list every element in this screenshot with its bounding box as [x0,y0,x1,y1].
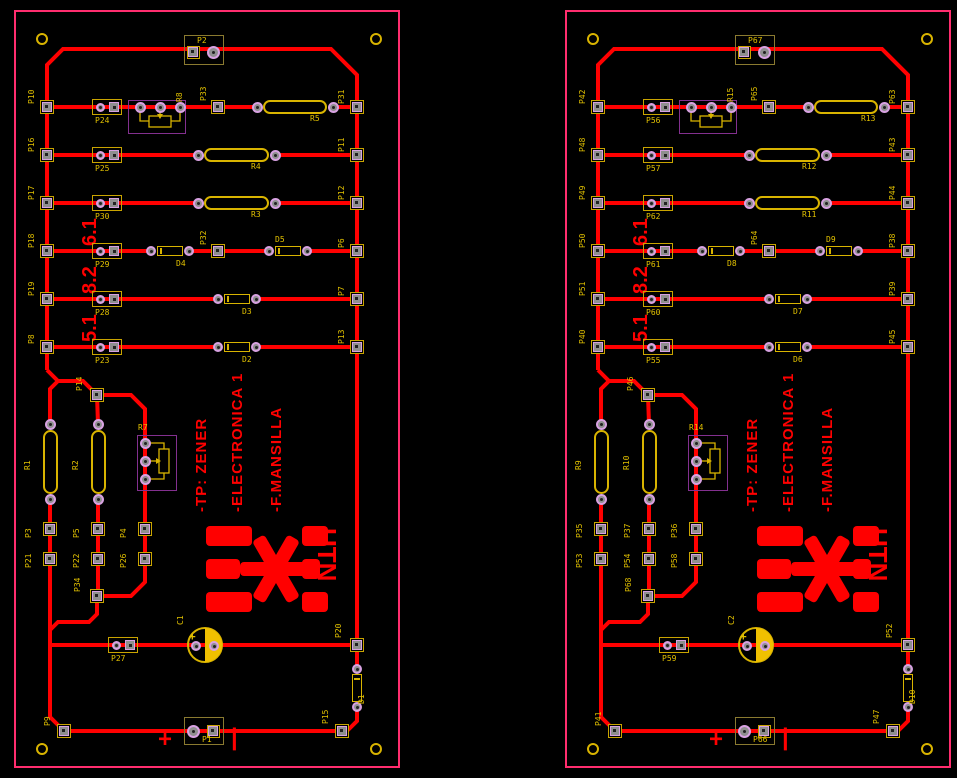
ref-label: P5 [73,528,81,538]
resistor-pad[interactable] [744,150,755,161]
silkscreen-line-2: -ELECTRONICA 1 [781,373,796,512]
ref-label: R13 [861,115,875,123]
polarity-minus: | [231,726,238,750]
pad-P40[interactable] [591,340,605,354]
diode-band [778,344,780,350]
ref-label: R11 [802,211,816,219]
polarity-plus: + [709,728,723,752]
diode-pad[interactable] [251,342,261,352]
resistor-pad[interactable] [252,102,263,113]
resistor-R13[interactable] [814,100,878,114]
ref-label: P56 [646,117,660,125]
header-pad[interactable] [660,294,670,304]
pad-P34[interactable] [90,589,104,603]
connector-pad-1[interactable] [187,46,200,59]
header-pad[interactable] [676,640,686,650]
diode-band [227,344,229,350]
pad-P51[interactable] [591,292,605,306]
ref-label: P6 [338,238,346,248]
pad-P13[interactable] [350,340,364,354]
zener-value: 5.1 [80,314,100,342]
header-pad[interactable] [109,102,119,112]
ref-label: P33 [200,87,208,101]
pad-P26[interactable] [138,552,152,566]
ref-label: R8 [176,92,184,102]
connector-label: P2 [197,37,207,45]
resistor-pad[interactable] [193,198,204,209]
trimmer-pad[interactable] [691,474,702,485]
ref-label: P35 [576,524,584,538]
ref-label: R12 [802,163,816,171]
pad-P3[interactable] [43,522,57,536]
ref-label: P32 [200,231,208,245]
ref-label: P22 [73,554,81,568]
connector-label: P1 [202,736,212,744]
ref-label: P59 [662,655,676,663]
resistor-R9[interactable] [594,430,609,494]
trimmer-pad[interactable] [140,456,151,467]
header-pad[interactable] [96,151,105,160]
ref-label: P44 [889,186,897,200]
resistor-pad[interactable] [45,494,56,505]
mounting-hole [921,743,933,755]
diode-pad[interactable] [764,294,774,304]
ref-label: P12 [338,186,346,200]
svg-text:UTN: UTN [863,528,891,581]
ref-label: D2 [242,356,252,364]
capacitor-pad[interactable] [760,641,770,651]
pad-P12[interactable] [350,196,364,210]
ref-label: P21 [25,554,33,568]
header-pad[interactable] [96,247,105,256]
ref-label: P26 [120,554,128,568]
resistor-pad[interactable] [93,494,104,505]
resistor-pad[interactable] [744,198,755,209]
ref-label: D9 [826,236,836,244]
ref-label: P8 [28,334,36,344]
ref-label: P40 [579,330,587,344]
ref-label: P7 [338,286,346,296]
ref-label: P10 [28,90,36,104]
pad-P45[interactable] [901,340,915,354]
header-pad[interactable] [125,640,135,650]
pad-P22[interactable] [91,552,105,566]
ref-label: D1 [358,694,366,704]
ref-label: P63 [889,90,897,104]
utn-logo: UTN [206,522,340,614]
trimmer-pad[interactable] [135,102,146,113]
connector-pad-2[interactable] [207,46,220,59]
header-pad[interactable] [109,198,119,208]
diode-pad[interactable] [903,664,913,674]
resistor-R1[interactable] [43,430,58,494]
header-pad[interactable] [647,295,656,304]
silkscreen-line-2: -ELECTRONICA 1 [230,373,245,512]
ref-label: P27 [111,655,125,663]
pad-P7[interactable] [350,292,364,306]
connector-pad-1[interactable] [738,725,751,738]
connector-pad-2[interactable] [758,46,771,59]
pad-P49[interactable] [591,196,605,210]
diode-band [778,296,780,302]
resistor-pad[interactable] [45,419,56,430]
silkscreen-line-3: -F.MANSILLA [820,407,835,512]
ref-label: P48 [579,138,587,152]
header-pad[interactable] [660,342,670,352]
ref-label: R3 [251,211,261,219]
pad-P47[interactable] [886,724,900,738]
ref-label: R5 [310,115,320,123]
diode-pad[interactable] [815,246,825,256]
trimmer-pad[interactable] [706,102,717,113]
diode-band [227,296,229,302]
ref-label: P20 [335,624,343,638]
pad-P5[interactable] [91,522,105,536]
ref-label: D6 [793,356,803,364]
trimmer-pad[interactable] [686,102,697,113]
ref-label: P37 [624,524,632,538]
pad-P31[interactable] [350,100,364,114]
ref-label: P23 [95,357,109,365]
pad-P50[interactable] [591,244,605,258]
polarity-plus: + [158,728,172,752]
header-pad[interactable] [112,641,121,650]
ref-label: P64 [751,231,759,245]
resistor-pad[interactable] [596,419,607,430]
pad-P42[interactable] [591,100,605,114]
trimmer-pad[interactable] [140,474,151,485]
ref-label: P3 [25,528,33,538]
ref-label: P39 [889,282,897,296]
trimmer-pad[interactable] [691,438,702,449]
header-pad[interactable] [660,198,670,208]
pad-P37[interactable] [642,522,656,536]
pad-P43[interactable] [901,148,915,162]
pad-P39[interactable] [901,292,915,306]
ref-label: P58 [671,554,679,568]
ref-label: P11 [338,138,346,152]
ref-label: P9 [44,716,52,726]
ref-label: P65 [751,87,759,101]
resistor-pad[interactable] [270,198,281,209]
ref-label: D3 [242,308,252,316]
pad-P17[interactable] [40,196,54,210]
pad-P16[interactable] [40,148,54,162]
pad-P10[interactable] [40,100,54,114]
diode-pad[interactable] [302,246,312,256]
ref-label: P53 [576,554,584,568]
ref-label: R10 [623,456,631,470]
ref-label: P41 [595,712,603,726]
mounting-hole [921,33,933,45]
diode-pad[interactable] [853,246,863,256]
ref-label: P52 [886,624,894,638]
diode-band [354,678,360,680]
cap-polarity-plus: + [189,631,196,642]
pad-P48[interactable] [591,148,605,162]
ref-label: P4 [120,528,128,538]
header-pad[interactable] [647,247,656,256]
resistor-pad[interactable] [803,102,814,113]
header-pad[interactable] [109,246,119,256]
silkscreen-line-3: -F.MANSILLA [269,407,284,512]
connector-pad-1[interactable] [738,46,751,59]
zener-value: 5.1 [631,314,651,342]
diode-band [711,248,713,254]
trimmer-pad[interactable] [155,102,166,113]
pcb-board-left[interactable]: P2P10P24R8P33R5P31P16P25R4P11P17P306.1R3… [14,10,400,768]
ref-label: D5 [275,236,285,244]
resistor-pad[interactable] [821,150,832,161]
pad-P46[interactable] [641,388,655,402]
ref-label: P55 [646,357,660,365]
pad-P53[interactable] [594,552,608,566]
header-pad[interactable] [96,295,105,304]
pad-P8[interactable] [40,340,54,354]
header-pad[interactable] [647,151,656,160]
svg-text:UTN: UTN [312,528,340,581]
trimmer-pad[interactable] [140,438,151,449]
ref-label: P31 [338,90,346,104]
pad-P58[interactable] [689,552,703,566]
pad-P20[interactable] [350,638,364,652]
ref-label: R2 [72,460,80,470]
ref-label: D10 [909,690,917,704]
resistor-R3[interactable] [204,196,269,210]
header-pad[interactable] [96,103,105,112]
ref-label: P38 [889,234,897,248]
diode-pad[interactable] [146,246,156,256]
resistor-R4[interactable] [204,148,269,162]
ref-label: C2 [728,615,736,625]
zener-value: 6.1 [80,218,100,246]
header-pad[interactable] [96,199,105,208]
pad-P15[interactable] [335,724,349,738]
ref-label: R9 [575,460,583,470]
zener-value: 6.1 [631,218,651,246]
diode-band [160,248,162,254]
pad-P68[interactable] [641,589,655,603]
resistor-pad[interactable] [93,419,104,430]
header-pad[interactable] [109,342,119,352]
diode-pad[interactable] [802,342,812,352]
ref-label: P57 [646,165,660,173]
pad-P9[interactable] [57,724,71,738]
ref-label: D7 [793,308,803,316]
mounting-hole [36,743,48,755]
mounting-hole [370,33,382,45]
utn-logo: UTN [757,522,891,614]
diode-pad[interactable] [264,246,274,256]
diode-pad[interactable] [213,342,223,352]
connector-label: P67 [748,37,762,45]
ref-label: P45 [889,330,897,344]
diode-pad[interactable] [697,246,707,256]
ref-label: P46 [627,377,635,391]
diode-pad[interactable] [251,294,261,304]
header-pad[interactable] [660,150,670,160]
diode-pad[interactable] [764,342,774,352]
diode-band [905,678,911,680]
diode-pad[interactable] [802,294,812,304]
pad-P35[interactable] [594,522,608,536]
trimmer-pad[interactable] [726,102,737,113]
ref-label: D4 [176,260,186,268]
pad-P18[interactable] [40,244,54,258]
ref-label: R15 [727,88,735,102]
ref-label: P34 [74,578,82,592]
header-pad[interactable] [647,199,656,208]
diode-pad[interactable] [184,246,194,256]
header-pad[interactable] [663,641,672,650]
resistor-pad[interactable] [644,419,655,430]
diode-band [829,248,831,254]
mounting-hole [587,743,599,755]
zener-value: 8.2 [631,266,651,294]
resistor-R12[interactable] [755,148,820,162]
pad-P21[interactable] [43,552,57,566]
header-pad[interactable] [96,343,105,352]
trimmer-pad[interactable] [175,102,186,113]
resistor-R5[interactable] [263,100,327,114]
pad-P54[interactable] [642,552,656,566]
ref-label: P16 [28,138,36,152]
diode-pad[interactable] [352,664,362,674]
ref-label: P19 [28,282,36,296]
pcb-board-right[interactable]: P67P42P56R15P65R13P63P48P57R12P43P49P626… [565,10,951,768]
mounting-hole [587,33,599,45]
capacitor-pad[interactable] [209,641,219,651]
zener-value: 8.2 [80,266,100,294]
ref-label: P15 [322,710,330,724]
pad-P14[interactable] [90,388,104,402]
header-pad[interactable] [660,246,670,256]
ref-label: P43 [889,138,897,152]
ref-label: P25 [95,165,109,173]
diode-pad[interactable] [735,246,745,256]
resistor-pad[interactable] [821,198,832,209]
pad-P44[interactable] [901,196,915,210]
pad-P6[interactable] [350,244,364,258]
pad-P38[interactable] [901,244,915,258]
pad-P63[interactable] [901,100,915,114]
resistor-pad[interactable] [193,150,204,161]
ref-label: P36 [671,524,679,538]
ref-label: C1 [177,615,185,625]
pad-P41[interactable] [608,724,622,738]
ref-label: R14 [689,424,703,432]
ref-label: R1 [24,460,32,470]
ref-label: P54 [624,554,632,568]
ref-label: P49 [579,186,587,200]
silkscreen-line-1: -TP: ZENER [194,418,209,512]
diode-pad[interactable] [213,294,223,304]
ref-label: P13 [338,330,346,344]
connector-label: P66 [753,736,767,744]
header-pad[interactable] [109,150,119,160]
pad-P33[interactable] [211,100,225,114]
pad-P65[interactable] [762,100,776,114]
polarity-minus: | [782,726,789,750]
ref-label: P68 [625,578,633,592]
diode-band [278,248,280,254]
resistor-pad[interactable] [270,150,281,161]
ref-label: R4 [251,163,261,171]
header-pad[interactable] [660,102,670,112]
ref-label: R7 [138,424,148,432]
ref-label: P17 [28,186,36,200]
mounting-hole [370,743,382,755]
resistor-R11[interactable] [755,196,820,210]
ref-label: D8 [727,260,737,268]
pad-P4[interactable] [138,522,152,536]
ref-label: P18 [28,234,36,248]
ref-label: P14 [76,377,84,391]
pad-P19[interactable] [40,292,54,306]
pad-P32[interactable] [211,244,225,258]
ref-label: P24 [95,117,109,125]
header-pad[interactable] [647,343,656,352]
resistor-pad[interactable] [644,494,655,505]
trimmer-pad[interactable] [691,456,702,467]
ref-label: P50 [579,234,587,248]
silkscreen-line-1: -TP: ZENER [745,418,760,512]
ref-label: P47 [873,710,881,724]
cap-polarity-plus: + [740,631,747,642]
resistor-pad[interactable] [596,494,607,505]
ref-label: P42 [579,90,587,104]
pad-P64[interactable] [762,244,776,258]
header-pad[interactable] [109,294,119,304]
header-pad[interactable] [647,103,656,112]
mounting-hole [36,33,48,45]
resistor-R2[interactable] [91,430,106,494]
pad-P36[interactable] [689,522,703,536]
pad-P11[interactable] [350,148,364,162]
pad-P52[interactable] [901,638,915,652]
connector-pad-1[interactable] [187,725,200,738]
ref-label: P51 [579,282,587,296]
resistor-R10[interactable] [642,430,657,494]
